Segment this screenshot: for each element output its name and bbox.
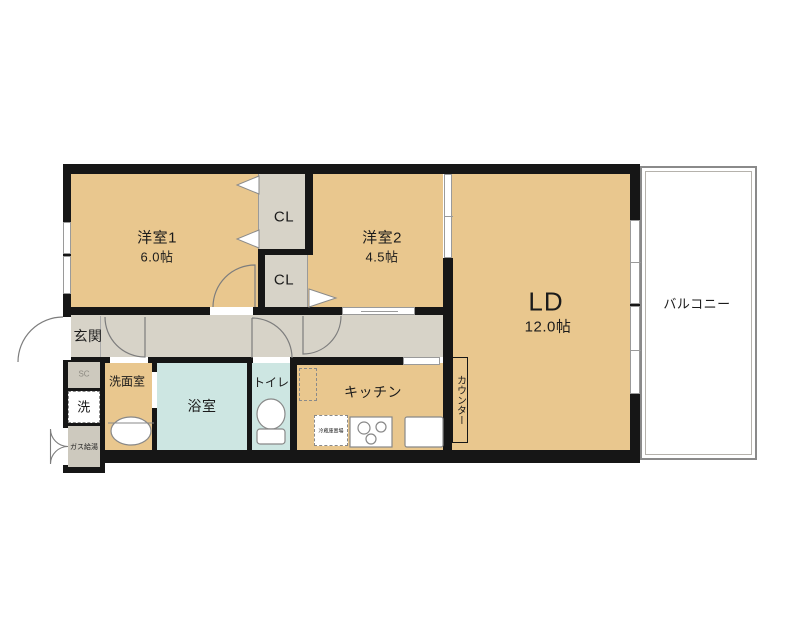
toilet-door-arc <box>252 318 292 358</box>
closet-upper-fold-icon-2 <box>237 230 259 248</box>
closet-lower-fold-icon <box>309 289 336 307</box>
bedroom2-size: 4.5帖 <box>365 247 398 266</box>
fridge-space-label: 冷蔵庫置場 <box>318 428 343 435</box>
toilet-bowl-icon <box>257 399 285 429</box>
corridor-door-arc <box>303 316 341 354</box>
toilet-label: トイレ <box>253 374 289 391</box>
kitchen-sink-icon <box>405 417 443 447</box>
kitchen-label: キッチン <box>344 382 402 402</box>
toilet-tank-icon <box>257 429 285 444</box>
closet-upper-label: CL <box>274 209 294 226</box>
living-dining-size: 12.0帖 <box>525 316 572 337</box>
washer-space-label: 洗 <box>77 397 91 416</box>
entrance-label: 玄関 <box>74 326 103 346</box>
shoe-closet-label: SC <box>78 370 89 379</box>
entrance-door-arc <box>18 317 63 362</box>
gas-heater-label: ガス給湯 <box>70 442 98 452</box>
stove-icon <box>350 417 392 447</box>
hallway-entrance-door-arc <box>105 317 145 357</box>
fixtures-and-doors-layer <box>0 0 795 636</box>
floorplan-canvas: 洋室1 6.0帖 洋室2 4.5帖 LD 12.0帖 CL CL 玄関 洗面室 … <box>0 0 795 636</box>
balcony-label: バルコニー <box>663 294 730 313</box>
living-dining-label: LD <box>528 287 563 318</box>
washroom-label: 洗面室 <box>109 373 145 390</box>
bedroom1-door-arc <box>213 265 255 307</box>
gas-heater-double-door-arcs <box>51 429 69 464</box>
counter-label: カウンター <box>453 375 468 425</box>
closet-lower-label: CL <box>274 272 294 289</box>
closet-upper-fold-icon-1 <box>237 176 259 194</box>
bedroom1-size: 6.0帖 <box>140 247 173 266</box>
bedroom2-label: 洋室2 <box>362 227 402 248</box>
washroom-sink-icon <box>111 417 151 445</box>
bedroom1-label: 洋室1 <box>137 227 177 248</box>
bathroom-label: 浴室 <box>188 396 217 416</box>
